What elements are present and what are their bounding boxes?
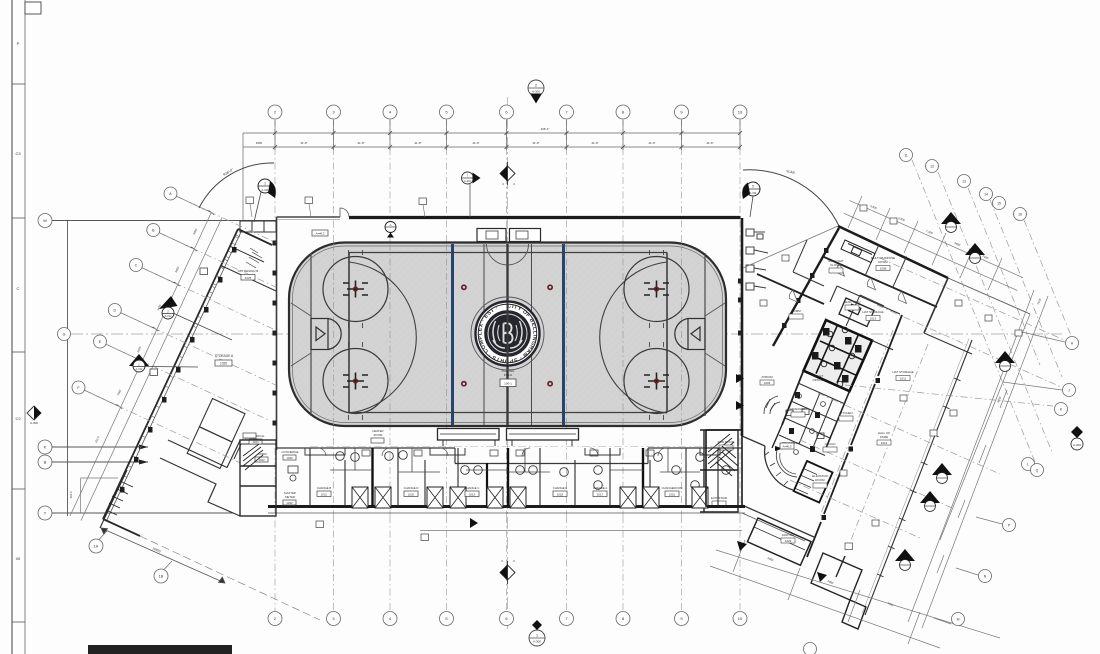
svg-text:L: L: [1027, 463, 1029, 467]
svg-text:K: K: [44, 445, 47, 450]
svg-text:FIELD: FIELD: [504, 373, 513, 377]
svg-text:A-300: A-300: [1073, 443, 1081, 447]
svg-text:13: 13: [962, 180, 966, 184]
svg-text:41'-8": 41'-8": [357, 141, 364, 145]
svg-text:METER: METER: [285, 495, 295, 499]
svg-text:A=#13: A=#13: [783, 445, 792, 449]
svg-text:G: G: [63, 333, 66, 337]
svg-text:1013: 1013: [870, 317, 877, 321]
svg-text:1029: 1029: [785, 539, 792, 543]
svg-text:D: D: [113, 309, 116, 313]
svg-text:1008: 1008: [880, 267, 887, 271]
svg-text:408'-4": 408'-4": [541, 127, 550, 131]
svg-text:1032: 1032: [286, 501, 293, 505]
svg-text:CHANGEROOM: CHANGEROOM: [662, 486, 683, 490]
svg-text:C2: C2: [15, 416, 21, 421]
svg-text:1003: 1003: [764, 381, 771, 385]
svg-text:HAT STORAGE: HAT STORAGE: [892, 370, 913, 374]
svg-text:CHANGE B: CHANGE B: [317, 486, 332, 490]
svg-text:A: A: [390, 223, 392, 227]
svg-text:2: 2: [535, 84, 537, 88]
svg-text:B: B: [44, 460, 47, 465]
svg-text:1025: 1025: [245, 276, 252, 280]
svg-text:HAT STORAGE: HAT STORAGE: [862, 310, 883, 314]
svg-text:1012: 1012: [881, 441, 888, 445]
svg-text:FAME: FAME: [880, 435, 888, 439]
svg-text:1B: 1B: [159, 575, 164, 579]
svg-text:A-311: A-311: [749, 191, 757, 195]
svg-text:A=#13: A=#13: [316, 232, 325, 236]
svg-text:41'-8": 41'-8": [591, 141, 598, 145]
svg-text:A-300: A-300: [533, 640, 541, 644]
svg-text:JANITOR: JANITOR: [782, 533, 796, 537]
svg-text:41'-8": 41'-8": [532, 141, 539, 145]
svg-text:POD ROOM: POD ROOM: [718, 440, 735, 444]
svg-text:15: 15: [997, 202, 1001, 206]
svg-text:A-300: A-300: [532, 90, 540, 94]
svg-text:1016: 1016: [669, 492, 676, 496]
svg-text:KITCHEN: KITCHEN: [839, 411, 852, 415]
svg-text:C: C: [135, 264, 138, 268]
svg-text:ATT DESIGN B: ATT DESIGN B: [238, 269, 259, 273]
svg-text:MANAGER: MANAGER: [790, 407, 806, 411]
svg-text:M: M: [957, 618, 960, 622]
svg-text:16: 16: [1018, 213, 1022, 217]
svg-text:1026: 1026: [220, 362, 227, 366]
svg-text:1: 1: [536, 634, 538, 638]
svg-text:OFFICE: OFFICE: [813, 378, 824, 382]
svg-text:CHANGE A: CHANGE A: [593, 486, 608, 490]
svg-text:CHANGE E: CHANGE E: [553, 486, 568, 490]
svg-text:12: 12: [930, 165, 934, 169]
svg-text:10: 10: [738, 110, 743, 115]
svg-text:10: 10: [738, 616, 743, 621]
svg-text:ROOM: ROOM: [815, 478, 825, 482]
svg-text:1011: 1011: [900, 377, 907, 381]
svg-text:41'-8": 41'-8": [414, 141, 421, 145]
svg-text:J: J: [1068, 389, 1070, 393]
svg-text:1020: 1020: [408, 492, 415, 496]
svg-text:00: 00: [16, 556, 21, 561]
svg-text:1033: 1033: [286, 456, 293, 460]
svg-text:COACH: COACH: [825, 442, 836, 446]
svg-text:CHANGE C: CHANGE C: [465, 486, 480, 490]
svg-text:STORAGE A: STORAGE A: [215, 354, 234, 358]
svg-text:1021: 1021: [321, 492, 328, 496]
svg-text:6365: 6365: [256, 141, 263, 145]
svg-text:102.0: 102.0: [69, 491, 73, 498]
svg-text:1: 1: [264, 182, 266, 186]
svg-text:41'-8": 41'-8": [472, 141, 479, 145]
svg-text:C3: C3: [15, 151, 21, 156]
svg-text:1019: 1019: [469, 492, 476, 496]
svg-text:CONCIERGE: CONCIERGE: [282, 450, 299, 454]
svg-text:11: 11: [904, 154, 908, 158]
svg-text:41'-8": 41'-8": [706, 141, 713, 145]
svg-text:41'-8": 41'-8": [300, 141, 307, 145]
svg-text:A-310: A-310: [464, 179, 471, 183]
svg-text:ROOM: ROOM: [878, 260, 888, 264]
svg-text:CHANGE D: CHANGE D: [404, 486, 419, 490]
svg-text:5: 5: [752, 185, 754, 189]
svg-text:A-311: A-311: [261, 188, 269, 192]
svg-text:W: W: [43, 218, 47, 223]
svg-text:Q: Q: [1036, 469, 1039, 473]
svg-text:14: 14: [984, 193, 988, 197]
svg-text:A-312: A-312: [136, 367, 143, 371]
svg-text:A-312: A-312: [165, 314, 172, 318]
svg-text:COMM: COMM: [791, 309, 801, 313]
svg-text:CLOSET: CLOSET: [830, 263, 842, 267]
svg-text:EXIT STAIR: EXIT STAIR: [711, 496, 728, 500]
svg-text:41'-8": 41'-8": [648, 141, 655, 145]
svg-text:A-300: A-300: [30, 421, 38, 425]
svg-text:C: C: [17, 286, 20, 291]
svg-text:P: P: [17, 41, 20, 46]
svg-text:ATRIUM: ATRIUM: [761, 375, 773, 379]
svg-text:1018: 1018: [557, 492, 564, 496]
svg-text:100-1: 100-1: [504, 382, 512, 386]
svg-text:1A: 1A: [94, 545, 99, 549]
svg-text:1017: 1017: [597, 492, 604, 496]
svg-text:LEAD TECH: LEAD TECH: [844, 300, 861, 304]
svg-text:ROOM: ROOM: [374, 433, 383, 437]
